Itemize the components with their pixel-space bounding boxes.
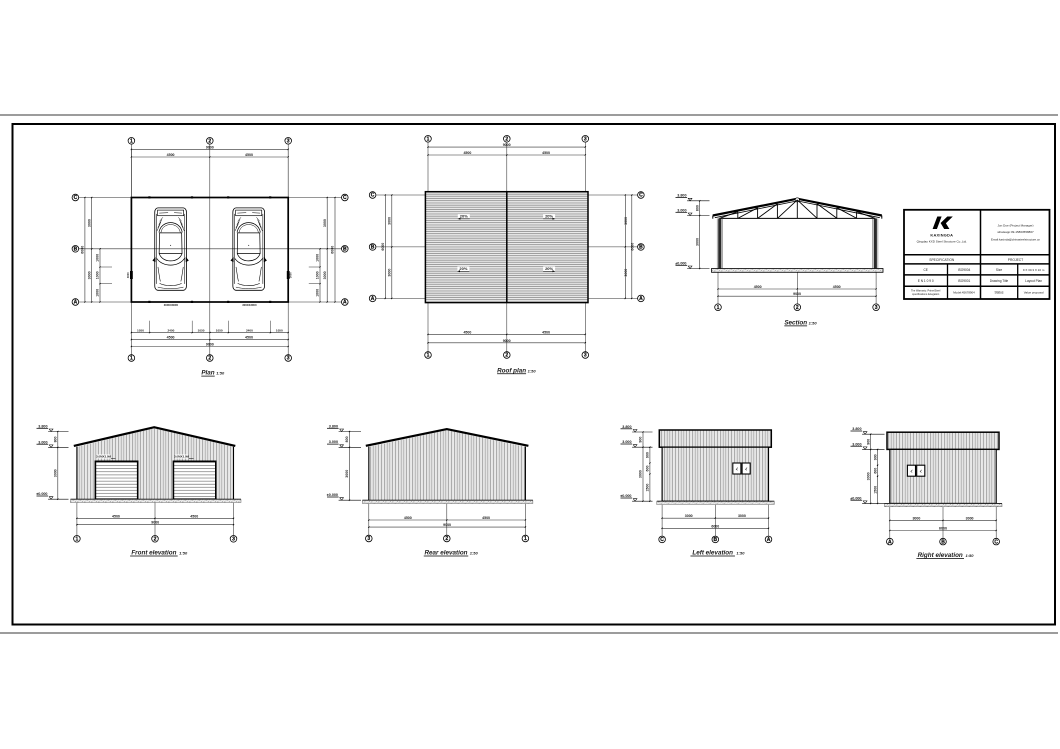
svg-text:1:50: 1:50 — [179, 551, 188, 556]
svg-text:3: 3 — [584, 137, 587, 143]
svg-text:B: B — [713, 537, 717, 543]
svg-text:3000: 3000 — [738, 514, 746, 518]
svg-text:2400: 2400 — [167, 329, 174, 333]
svg-text:±0.000: ±0.000 — [36, 492, 47, 496]
svg-text:B: B — [371, 245, 375, 251]
svg-text:3000: 3000 — [695, 238, 699, 246]
svg-text:20%: 20% — [459, 266, 467, 271]
svg-text:A: A — [639, 296, 643, 302]
svg-text:A: A — [343, 300, 347, 306]
svg-text:3000: 3000 — [54, 469, 58, 477]
svg-text:4500: 4500 — [463, 151, 471, 155]
svg-text:KAXINGDA: KAXINGDA — [930, 232, 953, 237]
svg-text:9000: 9000 — [503, 339, 511, 343]
svg-text:600: 600 — [646, 466, 650, 472]
svg-text:1:50: 1:50 — [736, 551, 745, 556]
svg-text:1000: 1000 — [96, 271, 100, 279]
svg-text:A: A — [767, 537, 771, 543]
svg-text:C: C — [371, 193, 375, 199]
svg-text:Email:kaxinda@chinasteelstruct: Email:kaxinda@chinasteelstructure.cn — [991, 237, 1040, 241]
svg-text:3.000: 3.000 — [677, 208, 686, 212]
svg-text:20%: 20% — [545, 266, 553, 271]
svg-text:3: 3 — [232, 537, 235, 543]
svg-text:3000X3000: 3000X3000 — [242, 303, 257, 307]
svg-text:3: 3 — [584, 353, 587, 359]
svg-text:B: B — [941, 539, 945, 545]
svg-text:3000: 3000 — [624, 269, 628, 277]
svg-text:9000: 9000 — [503, 143, 511, 147]
svg-text:Right elevation: Right elevation — [918, 552, 963, 559]
svg-text:2: 2 — [445, 536, 448, 542]
svg-text:4500: 4500 — [190, 514, 198, 518]
svg-text:3.000: 3.000 — [852, 442, 861, 446]
svg-text:4500: 4500 — [754, 285, 762, 289]
svg-text:6000: 6000 — [381, 243, 385, 251]
svg-text:3000: 3000 — [912, 516, 920, 520]
svg-text:B: B — [74, 247, 78, 253]
svg-text:4500: 4500 — [833, 285, 841, 289]
svg-text:SPECIFICATION: SPECIFICATION — [929, 258, 955, 262]
svg-text:3000: 3000 — [966, 516, 974, 520]
svg-text:1: 1 — [717, 305, 720, 311]
svg-text:ISO9004: ISO9004 — [958, 268, 971, 272]
svg-text:4500: 4500 — [245, 336, 253, 340]
svg-text:600: 600 — [873, 468, 877, 474]
svg-text:1: 1 — [76, 537, 79, 543]
svg-text:6000: 6000 — [711, 524, 719, 528]
svg-text:2: 2 — [154, 537, 157, 543]
svg-text:1000: 1000 — [96, 289, 100, 297]
svg-text:1: 1 — [427, 137, 430, 143]
svg-text:3000: 3000 — [685, 514, 693, 518]
svg-text:1000: 1000 — [96, 254, 100, 262]
svg-text:3: 3 — [875, 305, 878, 311]
svg-text:900: 900 — [646, 452, 650, 458]
svg-text:6000: 6000 — [81, 246, 85, 254]
svg-text:2: 2 — [796, 305, 799, 311]
svg-text:2: 2 — [208, 356, 211, 362]
svg-text:A: A — [888, 539, 892, 545]
svg-text:4500: 4500 — [404, 516, 412, 520]
svg-text:1050: 1050 — [276, 329, 283, 333]
svg-text:9000: 9000 — [793, 292, 801, 296]
svg-text:3000: 3000 — [288, 272, 292, 278]
svg-text:PROJECT: PROJECT — [1008, 258, 1023, 262]
svg-text:±0.000: ±0.000 — [850, 496, 861, 500]
svg-text:3: 3 — [287, 356, 290, 362]
svg-text:Qingdao KXD Steel Structure Co: Qingdao KXD Steel Structure Co.,Ltd. — [917, 239, 968, 243]
svg-text:900: 900 — [873, 454, 877, 460]
svg-text:1:50: 1:50 — [216, 371, 225, 376]
svg-text:Front elevation: Front elevation — [131, 550, 176, 557]
svg-text:C: C — [343, 195, 347, 201]
svg-text:E N 1 0 9 0: E N 1 0 9 0 — [918, 279, 934, 283]
svg-text:3000: 3000 — [345, 470, 349, 478]
svg-text:3.800: 3.800 — [852, 427, 861, 431]
svg-text:6000: 6000 — [631, 243, 635, 251]
svg-text:1000: 1000 — [316, 271, 320, 279]
svg-text:3.000: 3.000 — [329, 440, 338, 444]
svg-text:Drawing Title: Drawing Title — [990, 279, 1009, 283]
svg-text:3.000: 3.000 — [38, 440, 47, 444]
svg-text:900: 900 — [639, 437, 643, 443]
svg-text:Roof plan: Roof plan — [497, 367, 526, 374]
svg-text:1:50: 1:50 — [470, 551, 479, 556]
svg-text:3000: 3000 — [866, 472, 870, 480]
svg-text:3000: 3000 — [323, 271, 327, 279]
svg-text:3000: 3000 — [639, 470, 643, 478]
svg-text:9000: 9000 — [151, 521, 159, 525]
svg-text:C: C — [994, 539, 998, 545]
svg-text:Status: Status — [994, 291, 1003, 295]
svg-text:2: 2 — [505, 353, 508, 359]
svg-text:3: 3 — [287, 139, 290, 145]
svg-text:3.0MX3.0M: 3.0MX3.0M — [96, 455, 111, 459]
svg-text:9000: 9000 — [443, 523, 451, 527]
svg-text:1:50: 1:50 — [809, 320, 818, 325]
svg-text:1050: 1050 — [137, 329, 144, 333]
svg-text:Size: Size — [996, 268, 1002, 272]
svg-text:±0.000: ±0.000 — [675, 261, 686, 265]
svg-text:1000: 1000 — [316, 254, 320, 262]
svg-text:4500: 4500 — [542, 330, 550, 334]
svg-text:1: 1 — [427, 353, 430, 359]
svg-text:Rear elevation: Rear elevation — [424, 550, 467, 557]
svg-text:1500: 1500 — [646, 484, 650, 492]
svg-text:1050: 1050 — [216, 329, 223, 333]
svg-text:B: B — [639, 245, 643, 251]
svg-text:9 X 30.3 X 10 m: 9 X 30.3 X 10 m — [1023, 268, 1045, 272]
svg-text:3000X3000: 3000X3000 — [164, 303, 179, 307]
svg-text:3.800: 3.800 — [622, 425, 631, 429]
svg-text:Value proposal: Value proposal — [1024, 291, 1044, 295]
svg-text:1: 1 — [130, 139, 133, 145]
svg-text:6000: 6000 — [331, 246, 335, 254]
svg-text:20%: 20% — [545, 214, 553, 219]
svg-text:3000: 3000 — [87, 271, 91, 279]
svg-text:6000: 6000 — [939, 527, 947, 531]
svg-text:B: B — [343, 247, 347, 253]
svg-text:3000: 3000 — [388, 269, 392, 277]
svg-text:specifications delegation: specifications delegation — [912, 293, 940, 296]
svg-text:A: A — [371, 296, 375, 302]
svg-text:3000: 3000 — [126, 272, 130, 278]
svg-text:A: A — [74, 300, 78, 306]
svg-text:4500: 4500 — [245, 153, 253, 157]
svg-text:4500: 4500 — [112, 514, 120, 518]
svg-text:2400: 2400 — [246, 329, 253, 333]
svg-text:1: 1 — [524, 536, 527, 542]
svg-text:9000: 9000 — [206, 343, 214, 347]
svg-text:1500: 1500 — [873, 486, 877, 494]
svg-text:3: 3 — [367, 536, 370, 542]
svg-text:4500: 4500 — [167, 336, 175, 340]
svg-text:9000: 9000 — [206, 145, 214, 149]
svg-text:C: C — [74, 195, 78, 201]
svg-text:4500: 4500 — [482, 516, 490, 520]
svg-text:Jon Doe (Project Manager): Jon Doe (Project Manager) — [997, 224, 1033, 228]
svg-text:Plan: Plan — [201, 370, 214, 377]
svg-text:1:50: 1:50 — [965, 553, 974, 558]
svg-text:Section: Section — [784, 319, 807, 326]
svg-text:C: C — [639, 193, 643, 199]
svg-text:CE: CE — [923, 268, 927, 272]
svg-text:4500: 4500 — [463, 330, 471, 334]
svg-text:3.000: 3.000 — [622, 440, 631, 444]
svg-text:3.0MX3.0M: 3.0MX3.0M — [174, 455, 189, 459]
svg-text:3000: 3000 — [323, 219, 327, 227]
svg-text:3000: 3000 — [624, 217, 628, 225]
svg-text:800: 800 — [54, 436, 58, 442]
svg-text:2: 2 — [208, 139, 211, 145]
svg-text:ISO9001: ISO9001 — [958, 279, 971, 283]
svg-text:900: 900 — [866, 439, 870, 445]
svg-text:1: 1 — [130, 356, 133, 362]
svg-text:1050: 1050 — [198, 329, 205, 333]
svg-text:3.800: 3.800 — [677, 194, 686, 198]
svg-text:1:50: 1:50 — [528, 368, 537, 373]
svg-text:800: 800 — [695, 205, 699, 211]
svg-text:3000: 3000 — [87, 219, 91, 227]
svg-text:3.800: 3.800 — [38, 424, 47, 428]
svg-text:1000: 1000 — [316, 289, 320, 297]
svg-text:3.800: 3.800 — [329, 424, 338, 428]
svg-text:Model:45678904: Model:45678904 — [953, 291, 975, 295]
svg-text:±0.000: ±0.000 — [327, 493, 338, 497]
svg-text:3000: 3000 — [388, 217, 392, 225]
svg-text:20%: 20% — [460, 214, 468, 219]
svg-text:±0.000: ±0.000 — [620, 494, 631, 498]
svg-text:2: 2 — [505, 137, 508, 143]
svg-text:4500: 4500 — [542, 151, 550, 155]
svg-text:4500: 4500 — [167, 153, 175, 157]
svg-text:whatsapp:09-15863558867: whatsapp:09-15863558867 — [997, 230, 1034, 234]
svg-text:Layout Plan: Layout Plan — [1025, 279, 1042, 283]
svg-text:Left elevation: Left elevation — [692, 550, 733, 557]
svg-text:800: 800 — [345, 436, 349, 442]
svg-text:C: C — [660, 537, 664, 543]
